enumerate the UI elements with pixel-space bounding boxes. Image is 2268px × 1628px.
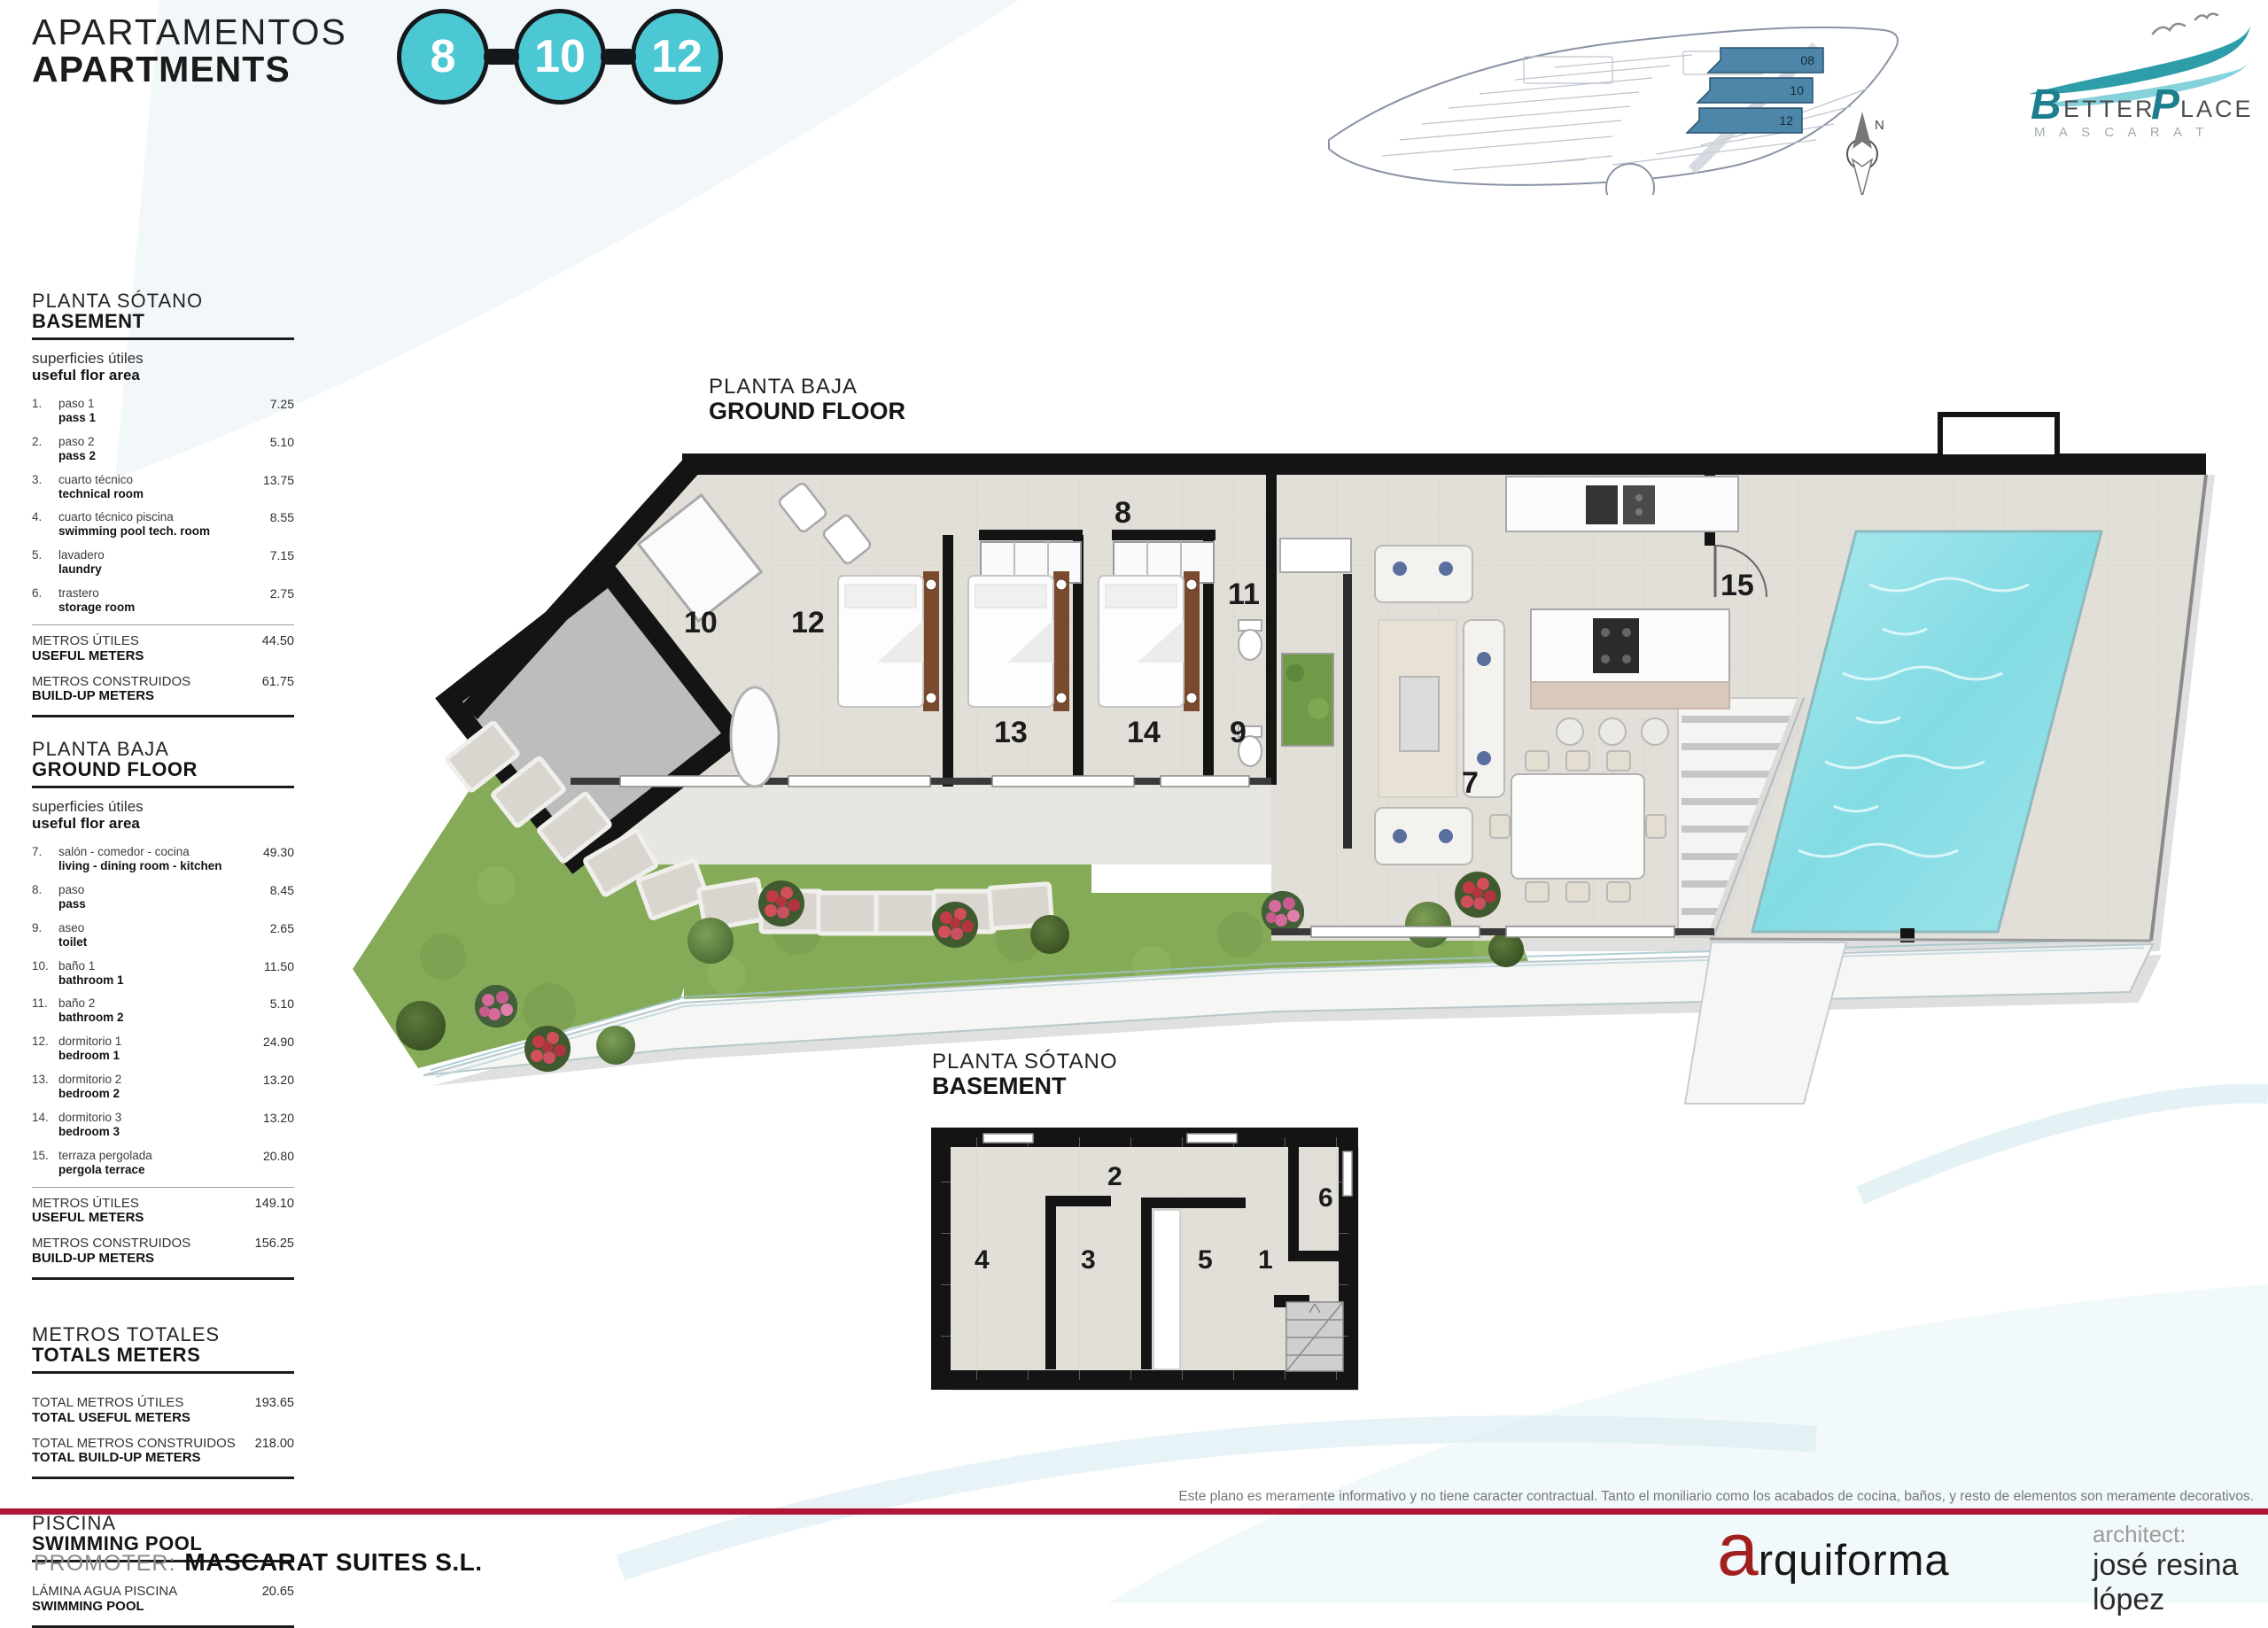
basement-stair-void (1153, 1210, 1180, 1369)
row-name-en: swimming pool tech. room (58, 524, 243, 539)
row-name-es: baño 1 (58, 959, 243, 973)
unit-circle-10: 10 (514, 9, 606, 105)
flower-cluster-icon (932, 902, 978, 948)
disclaimer-text: Este plano es meramente informativo y no… (1178, 1489, 2254, 1505)
row-name-en: pass (58, 897, 243, 911)
room-label-13: 13 (994, 716, 1028, 749)
architect-name: josé resina lópez (2093, 1548, 2268, 1617)
total-name-es: METROS CONSTRUIDOS (32, 675, 237, 690)
red-divider (0, 1508, 2268, 1515)
row-name-en: living - dining room - kitchen (58, 859, 243, 873)
total-value: 149.10 (237, 1197, 294, 1227)
row-name-es: paso 1 (58, 397, 243, 411)
row-name-es: dormitorio 1 (58, 1035, 243, 1049)
kitchen-counter-icon (1506, 477, 1738, 531)
row-value: 24.90 (243, 1035, 294, 1063)
canopy (1940, 415, 2057, 457)
row-name-es: dormitorio 3 (58, 1111, 243, 1125)
row-name-en: bedroom 3 (58, 1125, 243, 1139)
area-row: 4.cuarto técnico piscinaswimming pool te… (32, 510, 294, 539)
bush-icon (687, 918, 734, 964)
promoter-name: MASCARAT SUITES S.L. (184, 1548, 482, 1577)
totals-row: METROS CONSTRUIDOSBUILD-UP METERS61.75 (32, 675, 294, 705)
area-row: 12.dormitorio 1bedroom 124.90 (32, 1035, 294, 1063)
row-name-en: storage room (58, 601, 243, 615)
compass-icon: N (1847, 112, 1884, 195)
total-name-es: METROS CONSTRUIDOS (32, 1237, 237, 1252)
totals-rows: METROS ÚTILESUSEFUL METERS149.10METROS C… (32, 1187, 294, 1267)
room-label-5: 5 (1198, 1245, 1213, 1275)
row-name-en: pass 1 (58, 411, 243, 425)
basement-stairs-icon (1286, 1302, 1343, 1371)
section-subheader: superficies útiles useful flor area (32, 351, 294, 384)
total-value: 218.00 (237, 1437, 294, 1467)
total-name-es: METROS ÚTILES (32, 634, 237, 649)
stool-icon (1557, 718, 1583, 745)
totals-rows: TOTAL METROS ÚTILESTOTAL USEFUL METERS19… (32, 1387, 294, 1466)
studio-logo-rest: rquiforma (1759, 1536, 1950, 1585)
row-value: 8.45 (243, 883, 294, 911)
section-title-en: GROUND FLOOR (32, 759, 294, 779)
room-label-1: 1 (1258, 1245, 1273, 1275)
section-end-rule (32, 715, 294, 717)
sidebar-section: PLANTA SÓTANO BASEMENT superficies útile… (32, 291, 294, 717)
row-name-es: lavadero (58, 548, 243, 562)
section-title: PLANTA BAJA GROUND FLOOR (32, 739, 294, 779)
row-name-en: technical room (58, 487, 243, 501)
brand-subtitle: M A S C A R A T (2034, 125, 2209, 138)
room-label-12: 12 (791, 606, 825, 640)
row-value: 2.75 (243, 586, 294, 615)
area-rows: 7.salón - comedor - cocinaliving - dinin… (32, 845, 294, 1177)
bed-icon (968, 571, 1069, 711)
row-value: 49.30 (243, 845, 294, 873)
area-row: 2.paso 2pass 25.10 (32, 435, 294, 463)
row-name-es: paso (58, 883, 243, 897)
room-label-2: 2 (1107, 1162, 1122, 1191)
room-label-7: 7 (1462, 766, 1479, 800)
row-name-en: toilet (58, 935, 243, 950)
front-terrace (571, 785, 1271, 864)
total-name-es: TOTAL METROS ÚTILES (32, 1396, 237, 1411)
unit-circle-12: 12 (631, 9, 723, 105)
architect-label: architect: (2093, 1522, 2268, 1548)
flower-cluster-icon (1455, 872, 1501, 918)
page-title: APARTAMENTOS APARTMENTS (32, 14, 347, 89)
flower-cluster-icon (475, 985, 517, 1027)
section-title-es: METROS TOTALES (32, 1324, 294, 1345)
section-end-rule (32, 1477, 294, 1479)
area-row: 9.aseotoilet2.65 (32, 921, 294, 950)
svg-text:P: P (2151, 81, 2180, 128)
row-name-es: baño 2 (58, 996, 243, 1011)
unit-dash-icon (601, 49, 636, 65)
unit-circle-8: 8 (397, 9, 489, 105)
section-title-es: PLANTA BAJA (32, 739, 294, 759)
totals-rows: LÁMINA AGUA PISCINASWIMMING POOL20.65 (32, 1576, 294, 1615)
row-name-es: salón - comedor - cocina (58, 845, 243, 859)
totals-row: METROS CONSTRUIDOSBUILD-UP METERS156.25 (32, 1237, 294, 1267)
totals-row: TOTAL METROS ÚTILESTOTAL USEFUL METERS19… (32, 1396, 294, 1426)
row-number: 4. (32, 510, 58, 539)
area-row: 1.paso 1pass 17.25 (32, 397, 294, 425)
page-title-en: APARTMENTS (32, 51, 347, 89)
section-title-en: TOTALS METERS (32, 1345, 294, 1365)
row-number: 9. (32, 921, 58, 950)
stool-icon (1599, 718, 1626, 745)
room-label-3: 3 (1081, 1245, 1096, 1275)
bed-icon (1099, 571, 1200, 711)
row-name-es: terraza pergolada (58, 1149, 243, 1163)
total-name-en: BUILD-UP METERS (32, 1252, 237, 1267)
ground-floor-plan: 10 12 13 14 8 11 9 7 15 (337, 381, 2224, 1125)
row-number: 14. (32, 1111, 58, 1139)
row-number: 6. (32, 586, 58, 615)
row-value: 5.10 (243, 996, 294, 1025)
section-title: PLANTA SÓTANO BASEMENT (32, 291, 294, 331)
coffee-table-icon (1400, 677, 1439, 751)
row-value: 13.20 (243, 1073, 294, 1101)
total-value: 193.65 (237, 1396, 294, 1426)
area-row: 13.dormitorio 2bedroom 213.20 (32, 1073, 294, 1101)
bush-icon (596, 1026, 635, 1065)
area-row: 15.terraza pergoladapergola terrace20.80 (32, 1149, 294, 1177)
section-subheader-es: superficies útiles (32, 799, 294, 815)
sidebar-section: METROS TOTALES TOTALS METERS TOTAL METRO… (32, 1324, 294, 1479)
row-number: 5. (32, 548, 58, 577)
logo-swoosh-icon (2029, 26, 2251, 106)
unit-numbers: 8 10 12 (397, 9, 723, 105)
studio-logo: arquiforma (1717, 1516, 1950, 1585)
parcel-label-08: 08 (1800, 53, 1814, 67)
room-label-11: 11 (1228, 578, 1260, 611)
svg-text:LACE: LACE (2180, 96, 2254, 122)
page-title-es: APARTAMENTOS (32, 14, 347, 51)
row-name-es: dormitorio 2 (58, 1073, 243, 1087)
sidebar-section: PLANTA BAJA GROUND FLOOR superficies úti… (32, 739, 294, 1280)
row-name-es: paso 2 (58, 435, 243, 449)
area-row: 6.trasterostorage room2.75 (32, 586, 294, 615)
row-number: 12. (32, 1035, 58, 1063)
promoter-label: PROMOTER: (34, 1551, 175, 1577)
total-value: 156.25 (237, 1237, 294, 1267)
row-number: 1. (32, 397, 58, 425)
section-title-en: BASEMENT (32, 311, 294, 331)
room-label-9: 9 (1230, 716, 1247, 749)
tv-unit-icon (1343, 574, 1352, 849)
sofa-icon (1375, 808, 1472, 864)
row-name-es: cuarto técnico piscina (58, 510, 243, 524)
row-number: 3. (32, 473, 58, 501)
row-number: 10. (32, 959, 58, 988)
room-label-15: 15 (1720, 569, 1754, 602)
row-name-es: trastero (58, 586, 243, 601)
row-value: 11.50 (243, 959, 294, 988)
flower-cluster-icon (1262, 891, 1304, 934)
totals-row: METROS ÚTILESUSEFUL METERS149.10 (32, 1197, 294, 1227)
section-rule (32, 786, 294, 788)
section-subheader-en: useful flor area (32, 816, 294, 832)
total-name-en: TOTAL USEFUL METERS (32, 1411, 237, 1426)
studio-logo-initial: a (1717, 1516, 1759, 1584)
section-subheader: superficies útiles useful flor area (32, 799, 294, 832)
section-title: METROS TOTALES TOTALS METERS (32, 1324, 294, 1365)
basement-title-es: PLANTA SÓTANO (932, 1050, 1118, 1074)
entrance-path (1685, 942, 1846, 1104)
flower-cluster-icon (524, 1026, 571, 1072)
area-row: 11.baño 2bathroom 25.10 (32, 996, 294, 1025)
row-value: 5.10 (243, 435, 294, 463)
row-number: 2. (32, 435, 58, 463)
stool-icon (1642, 718, 1668, 745)
row-number: 8. (32, 883, 58, 911)
total-value: 61.75 (237, 675, 294, 705)
row-value: 8.55 (243, 510, 294, 539)
basement-title: PLANTA SÓTANO BASEMENT (932, 1050, 1118, 1100)
row-name-es: cuarto técnico (58, 473, 243, 487)
svg-text:B: B (2031, 81, 2062, 128)
row-name-en: bathroom 2 (58, 1011, 243, 1025)
flower-cluster-icon (758, 880, 804, 926)
section-end-rule (32, 1277, 294, 1280)
row-value: 2.65 (243, 921, 294, 950)
section-rule (32, 337, 294, 340)
bush-icon (396, 1001, 446, 1050)
row-name-en: bedroom 1 (58, 1049, 243, 1063)
total-name-en: SWIMMING POOL (32, 1600, 237, 1615)
row-name-en: pergola terrace (58, 1163, 243, 1177)
brand-logo: B ETTER P LACE M A S C A R A T (2022, 11, 2257, 138)
total-name-en: USEFUL METERS (32, 1211, 237, 1226)
total-name-en: BUILD-UP METERS (32, 689, 237, 704)
row-value: 13.75 (243, 473, 294, 501)
totals-row: METROS ÚTILESUSEFUL METERS44.50 (32, 634, 294, 664)
area-tables-sidebar: PLANTA SÓTANO BASEMENT superficies útile… (32, 291, 294, 1628)
bed-icon (838, 571, 939, 711)
row-name-en: bedroom 2 (58, 1087, 243, 1101)
totals-row: TOTAL METROS CONSTRUIDOSTOTAL BUILD-UP M… (32, 1437, 294, 1467)
basement-plan: 2 4 3 5 1 6 (913, 1116, 1373, 1399)
row-name-es: aseo (58, 921, 243, 935)
room-label-4: 4 (975, 1245, 990, 1275)
area-row: 3.cuarto técnicotechnical room13.75 (32, 473, 294, 501)
totals-row: LÁMINA AGUA PISCINASWIMMING POOL20.65 (32, 1585, 294, 1615)
section-title-es: PLANTA SÓTANO (32, 291, 294, 311)
svg-text:ETTER: ETTER (2063, 96, 2155, 122)
row-value: 7.15 (243, 548, 294, 577)
planter-texture (1308, 698, 1329, 719)
row-name-en: bathroom 1 (58, 973, 243, 988)
bathtub-icon (731, 687, 779, 787)
total-name-en: TOTAL BUILD-UP METERS (32, 1451, 237, 1466)
area-row: 8.pasopass8.45 (32, 883, 294, 911)
section-subheader-es: superficies útiles (32, 351, 294, 367)
room-label-10: 10 (684, 606, 718, 640)
area-row: 5.lavaderolaundry7.15 (32, 548, 294, 577)
total-name-es: TOTAL METROS CONSTRUIDOS (32, 1437, 237, 1452)
room-label-6: 6 (1318, 1183, 1333, 1213)
bush-icon (1405, 902, 1451, 948)
section-title-es: PISCINA (32, 1513, 294, 1533)
total-value: 44.50 (237, 634, 294, 664)
room-label-8: 8 (1115, 496, 1131, 530)
row-value: 7.25 (243, 397, 294, 425)
area-row: 14.dormitorio 3bedroom 313.20 (32, 1111, 294, 1139)
row-number: 13. (32, 1073, 58, 1101)
compass-north-label: N (1875, 118, 1884, 133)
planter-texture (1286, 664, 1304, 682)
total-value: 20.65 (237, 1585, 294, 1615)
section-rule (32, 1371, 294, 1374)
room-label-14: 14 (1127, 716, 1161, 749)
row-number: 7. (32, 845, 58, 873)
row-number: 15. (32, 1149, 58, 1177)
basement-title-en: BASEMENT (932, 1074, 1118, 1100)
dining-table-icon (1490, 751, 1666, 902)
section-subheader-en: useful flor area (32, 368, 294, 384)
totals-rows: METROS ÚTILESUSEFUL METERS44.50METROS CO… (32, 624, 294, 704)
area-row: 7.salón - comedor - cocinaliving - dinin… (32, 845, 294, 873)
site-plan: 08 10 12 N (1320, 7, 1915, 195)
parcel-label-12: 12 (1779, 113, 1793, 128)
row-value: 13.20 (243, 1111, 294, 1139)
sofa-icon (1375, 546, 1472, 602)
row-name-en: laundry (58, 562, 243, 577)
area-row: 10.baño 1bathroom 111.50 (32, 959, 294, 988)
bush-icon (1030, 915, 1069, 954)
total-name-en: USEFUL METERS (32, 649, 237, 664)
washbasin-icon (1280, 539, 1351, 572)
seagulls-icon (2153, 14, 2218, 34)
parcel-label-10: 10 (1790, 83, 1804, 97)
promoter: PROMOTER: MASCARAT SUITES S.L. (34, 1548, 483, 1577)
row-number: 11. (32, 996, 58, 1025)
row-value: 20.80 (243, 1149, 294, 1177)
unit-dash-icon (484, 49, 519, 65)
area-rows: 1.paso 1pass 17.252.paso 2pass 25.103.cu… (32, 397, 294, 615)
total-name-es: METROS ÚTILES (32, 1197, 237, 1212)
total-name-es: LÁMINA AGUA PISCINA (32, 1585, 237, 1600)
row-name-en: pass 2 (58, 449, 243, 463)
